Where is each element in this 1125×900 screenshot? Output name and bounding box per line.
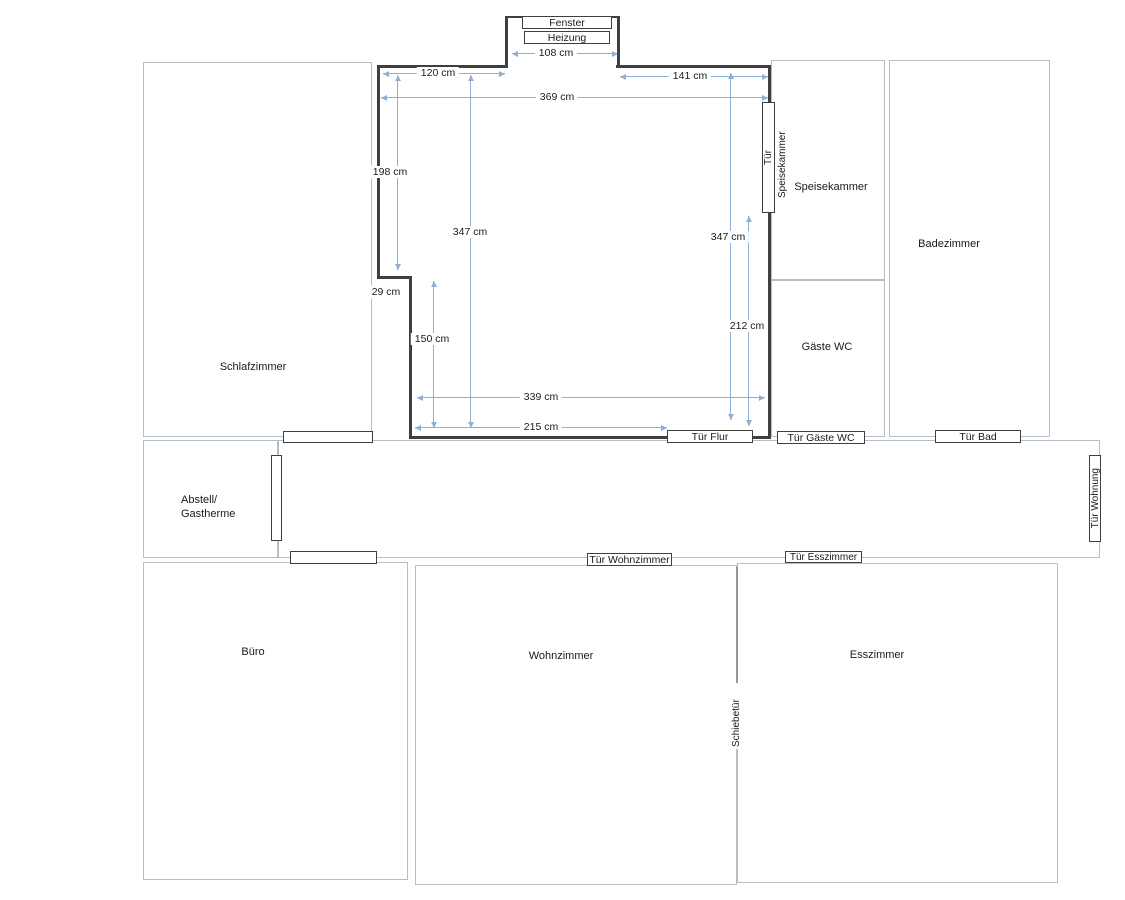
room-esszimmer xyxy=(737,563,1058,883)
room-speisekammer xyxy=(771,60,885,281)
gaeste-wc-label: Gäste WC xyxy=(802,341,853,353)
door-bad-label: Tür Bad xyxy=(959,431,996,443)
door-gaeste-wc: Tür Gäste WC xyxy=(777,431,865,444)
measure-line-150 xyxy=(433,281,434,428)
wall-notch-horizontal xyxy=(377,276,412,279)
fenster-box: Fenster xyxy=(522,16,612,29)
door-schlafzimmer xyxy=(283,431,373,443)
room-wohnzimmer xyxy=(415,565,737,885)
schlafzimmer-label: Schlafzimmer xyxy=(220,361,287,373)
heizung-box: Heizung xyxy=(524,31,610,44)
door-bad: Tür Bad xyxy=(935,430,1021,443)
esszimmer-label: Esszimmer xyxy=(850,649,904,661)
abstell-label-line2: Gastherme xyxy=(181,507,235,521)
floor-plan: 108 cm 120 cm 141 cm 369 cm 198 cm 29 cm… xyxy=(0,0,1125,900)
wall-notch-vertical xyxy=(409,276,412,439)
schiebetuer-label: Schiebetür xyxy=(731,683,742,749)
measure-label-369: 369 cm xyxy=(536,91,578,103)
measure-label-339: 339 cm xyxy=(520,391,562,403)
door-flur: Tür Flur xyxy=(667,430,753,443)
door-speisekammer-label: Tür xyxy=(763,150,774,165)
abstell-gastherme-label: Abstell/ Gastherme xyxy=(181,493,235,521)
measure-label-215: 215 cm xyxy=(520,421,562,433)
speisekammer-door-side-label: Speisekammer xyxy=(777,118,788,198)
door-wohnzimmer: Tür Wohnzimmer xyxy=(587,553,672,566)
wall-alcove-left xyxy=(505,16,508,68)
measure-label-198: 198 cm xyxy=(369,166,411,178)
measure-label-347-left: 347 cm xyxy=(449,226,491,238)
wohnzimmer-label: Wohnzimmer xyxy=(529,650,594,662)
door-wohnzimmer-label: Tür Wohnzimmer xyxy=(589,554,669,566)
measure-label-29: 29 cm xyxy=(368,286,405,298)
measure-label-347-right: 347 cm xyxy=(707,231,749,243)
wall-alcove-right xyxy=(617,16,620,68)
measure-label-150: 150 cm xyxy=(411,333,453,345)
room-buero xyxy=(143,562,408,880)
room-hallway xyxy=(143,440,1100,558)
door-gaeste-wc-label: Tür Gäste WC xyxy=(787,432,854,444)
room-schlafzimmer xyxy=(143,62,372,437)
door-flur-label: Tür Flur xyxy=(692,431,729,443)
heizung-label: Heizung xyxy=(548,32,587,44)
door-abstell xyxy=(271,455,282,541)
abstell-label-line1: Abstell/ xyxy=(181,493,235,507)
wall-top-right xyxy=(616,65,771,68)
door-esszimmer: Tür Esszimmer xyxy=(785,551,862,563)
door-speisekammer: Tür xyxy=(762,102,775,213)
measure-line-347-left xyxy=(470,75,471,428)
measure-label-212: 212 cm xyxy=(726,320,768,332)
door-buero xyxy=(290,551,377,564)
buero-label: Büro xyxy=(241,646,264,658)
door-wohnung: Tür Wohnung xyxy=(1089,455,1101,542)
speisekammer-label: Speisekammer xyxy=(794,181,867,193)
measure-label-120: 120 cm xyxy=(417,67,459,79)
schiebetuer-wall-upper xyxy=(736,567,738,683)
door-wohnung-label: Tür Wohnung xyxy=(1090,468,1101,528)
room-gaeste-wc xyxy=(771,279,885,437)
measure-line-347-right xyxy=(730,73,731,420)
badezimmer-label: Badezimmer xyxy=(918,238,980,250)
measure-label-108: 108 cm xyxy=(535,47,577,59)
door-esszimmer-label: Tür Esszimmer xyxy=(790,552,857,563)
fenster-label: Fenster xyxy=(549,17,585,29)
schiebetuer-wall-lower xyxy=(736,745,738,883)
measure-label-141: 141 cm xyxy=(669,70,711,82)
